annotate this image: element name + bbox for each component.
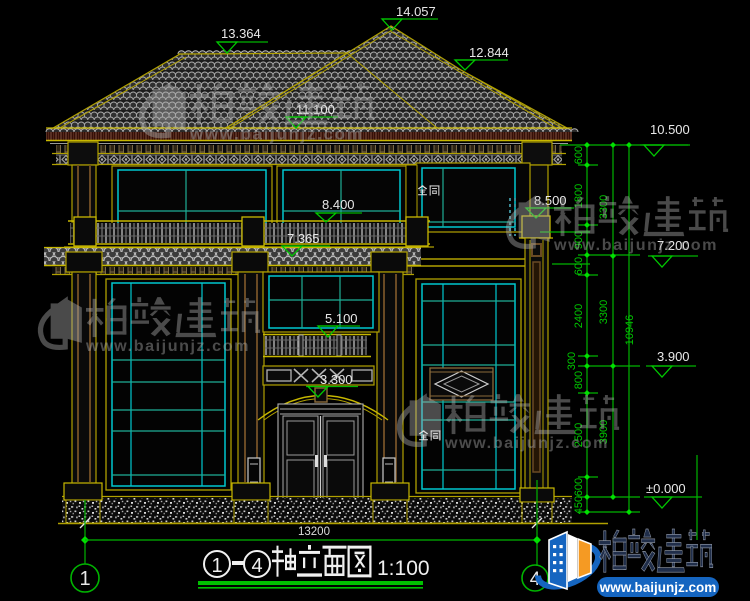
- svg-text:1: 1: [211, 555, 222, 577]
- svg-text:4: 4: [251, 555, 262, 577]
- svg-text:www.baijunjz.com: www.baijunjz.com: [444, 434, 609, 452]
- svg-text:www.baijunjz.com: www.baijunjz.com: [553, 236, 718, 254]
- svg-text:www.baijunjz.com: www.baijunjz.com: [189, 125, 364, 144]
- svg-text:1:100: 1:100: [377, 557, 430, 580]
- svg-text:1: 1: [79, 568, 90, 590]
- svg-text:7.365: 7.365: [287, 231, 320, 246]
- svg-text:450: 450: [573, 496, 585, 514]
- svg-text:±0.000: ±0.000: [646, 481, 686, 496]
- svg-text:3300: 3300: [598, 300, 610, 324]
- svg-text:5.100: 5.100: [325, 311, 358, 326]
- svg-text:600: 600: [573, 257, 585, 275]
- svg-text:www.baijunjz.com: www.baijunjz.com: [85, 337, 250, 355]
- svg-text:10.500: 10.500: [650, 122, 690, 137]
- svg-text:300: 300: [566, 352, 578, 370]
- svg-text:600: 600: [573, 478, 585, 496]
- svg-text:600: 600: [573, 146, 585, 164]
- svg-text:10946: 10946: [624, 315, 636, 346]
- svg-text:13.364: 13.364: [221, 26, 261, 41]
- svg-text:3.300: 3.300: [320, 372, 353, 387]
- svg-text:www.baijunjz.com: www.baijunjz.com: [599, 580, 717, 595]
- svg-text:800: 800: [573, 371, 585, 389]
- svg-text:3.900: 3.900: [657, 349, 690, 364]
- svg-text:14.057: 14.057: [396, 4, 436, 19]
- svg-text:13200: 13200: [298, 526, 330, 538]
- svg-text:12.844: 12.844: [469, 45, 509, 60]
- svg-text:8.400: 8.400: [322, 197, 355, 212]
- svg-text:2400: 2400: [573, 304, 585, 328]
